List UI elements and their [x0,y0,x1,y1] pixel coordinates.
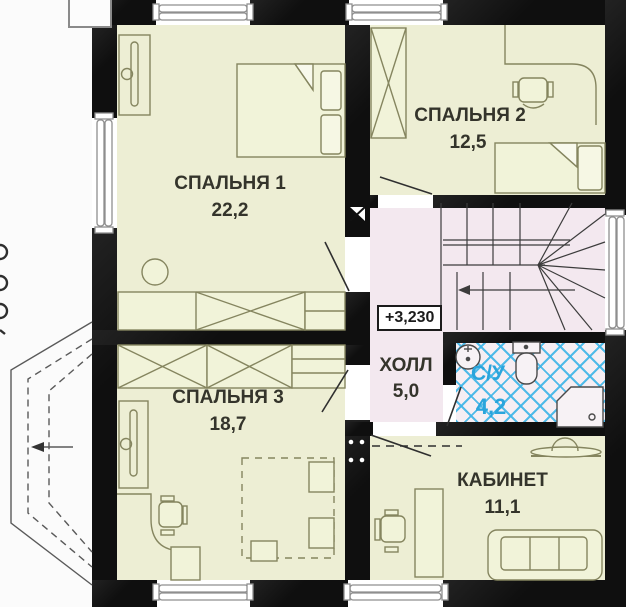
office-area: 11,1 [410,497,595,519]
chimney-outline [68,0,112,28]
elevation-mark: +3,230 [377,305,442,331]
office-shelf [531,438,601,457]
bedroom2-label: СПАЛЬНЯ 2 [390,105,550,127]
bathroom-area: 4,2 [451,394,531,420]
bed1-double-bed [237,64,345,157]
vent-flue-symbol [349,207,365,462]
bedroom2-door-leaf [380,177,432,194]
clipped-edge-text-fragment [0,245,7,334]
bedroom1-area: 22,2 [130,200,330,222]
bedroom3-area: 18,7 [128,414,328,436]
bedroom1-door-leaf [325,242,349,291]
bed1-wardrobe [118,292,345,330]
bedroom3-furniture [117,345,345,580]
stool-icon [142,259,168,285]
bed3-chair [159,496,187,535]
bed3-dashed-bed [242,458,334,561]
shower-tray-icon [557,387,603,427]
office-label: КАБИНЕТ [410,470,595,492]
office-chair [375,510,405,552]
stair-direction-arrow [458,285,470,295]
bedroom2-area: 12,5 [388,132,548,154]
bay-roof-outline [11,322,92,585]
office-sofa [488,530,602,580]
radiator-icon [119,35,150,115]
staircase [441,203,605,330]
bed2-chair [513,78,553,108]
floor-plan: СПАЛЬНЯ 1 22,2 СПАЛЬНЯ 2 12,5 СПАЛЬНЯ 3 … [0,0,626,607]
bay-direction-arrow [31,442,44,452]
bed3-stand [171,547,200,580]
bedroom3-label: СПАЛЬНЯ 3 [128,387,328,409]
hall-area: 5,0 [366,381,446,403]
hall-label: ХОЛЛ [366,355,446,377]
bedroom1-label: СПАЛЬНЯ 1 [130,173,330,195]
bed3-wardrobes [118,345,345,388]
bathroom-label: С/У [448,362,528,386]
